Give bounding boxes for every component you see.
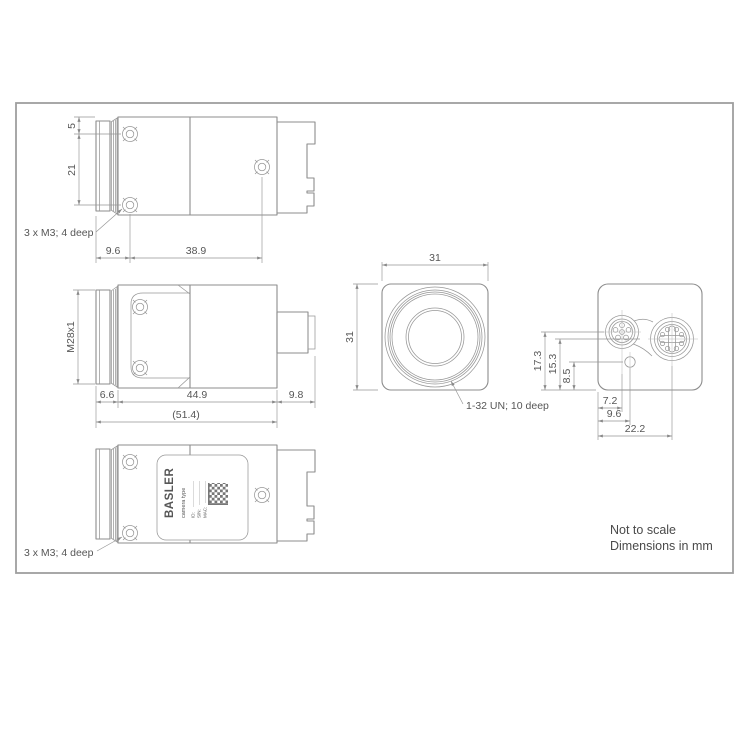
dim-text-m28x1: M28x1	[65, 321, 77, 353]
m3-label-bottom: 3 x M3; 4 deep	[24, 547, 94, 559]
drawing-frame	[16, 103, 733, 573]
dim-text-31-width: 31	[429, 252, 441, 264]
sticker-field-mac: MAC:	[203, 507, 208, 518]
dim-text-5: 5	[66, 123, 78, 129]
sticker-brand: BASLER	[164, 468, 176, 518]
dim-text-9.8: 9.8	[289, 389, 304, 401]
dim-text-9.6b: 9.6	[607, 408, 622, 420]
dim-text-7.2: 7.2	[603, 395, 618, 407]
dim-text-17.3: 17.3	[532, 351, 544, 372]
sticker-type: camera type	[181, 488, 187, 518]
note-dimensions-mm: Dimensions in mm	[610, 539, 713, 553]
dim-text-9.6: 9.6	[106, 245, 121, 257]
camera-dimension-drawing: 5 21 9.6 38.9 3 x M3; 4 deep	[0, 0, 750, 750]
dim-text-51.4: (51.4)	[172, 409, 199, 421]
data-matrix-code	[208, 483, 228, 505]
id-sticker: BASLER camera type ID: S/N: MAC:	[157, 455, 248, 540]
dim-text-15.3: 15.3	[547, 354, 559, 375]
note-not-to-scale: Not to scale	[610, 523, 676, 537]
m3-label-top: 3 x M3; 4 deep	[24, 227, 94, 239]
sticker-field-sn: S/N:	[197, 509, 202, 518]
dim-text-21: 21	[66, 164, 78, 176]
dim-text-31-height: 31	[344, 331, 356, 343]
dim-text-6.6: 6.6	[100, 389, 115, 401]
technical-drawing-canvas: 5 21 9.6 38.9 3 x M3; 4 deep	[0, 0, 750, 750]
dim-text-8.5: 8.5	[561, 369, 573, 384]
thread-label: 1-32 UN; 10 deep	[466, 400, 549, 412]
dim-text-44.9: 44.9	[187, 389, 208, 401]
dim-text-38.9: 38.9	[186, 245, 207, 257]
dim-text-22.2: 22.2	[625, 423, 646, 435]
sticker-field-id: ID:	[191, 512, 196, 518]
